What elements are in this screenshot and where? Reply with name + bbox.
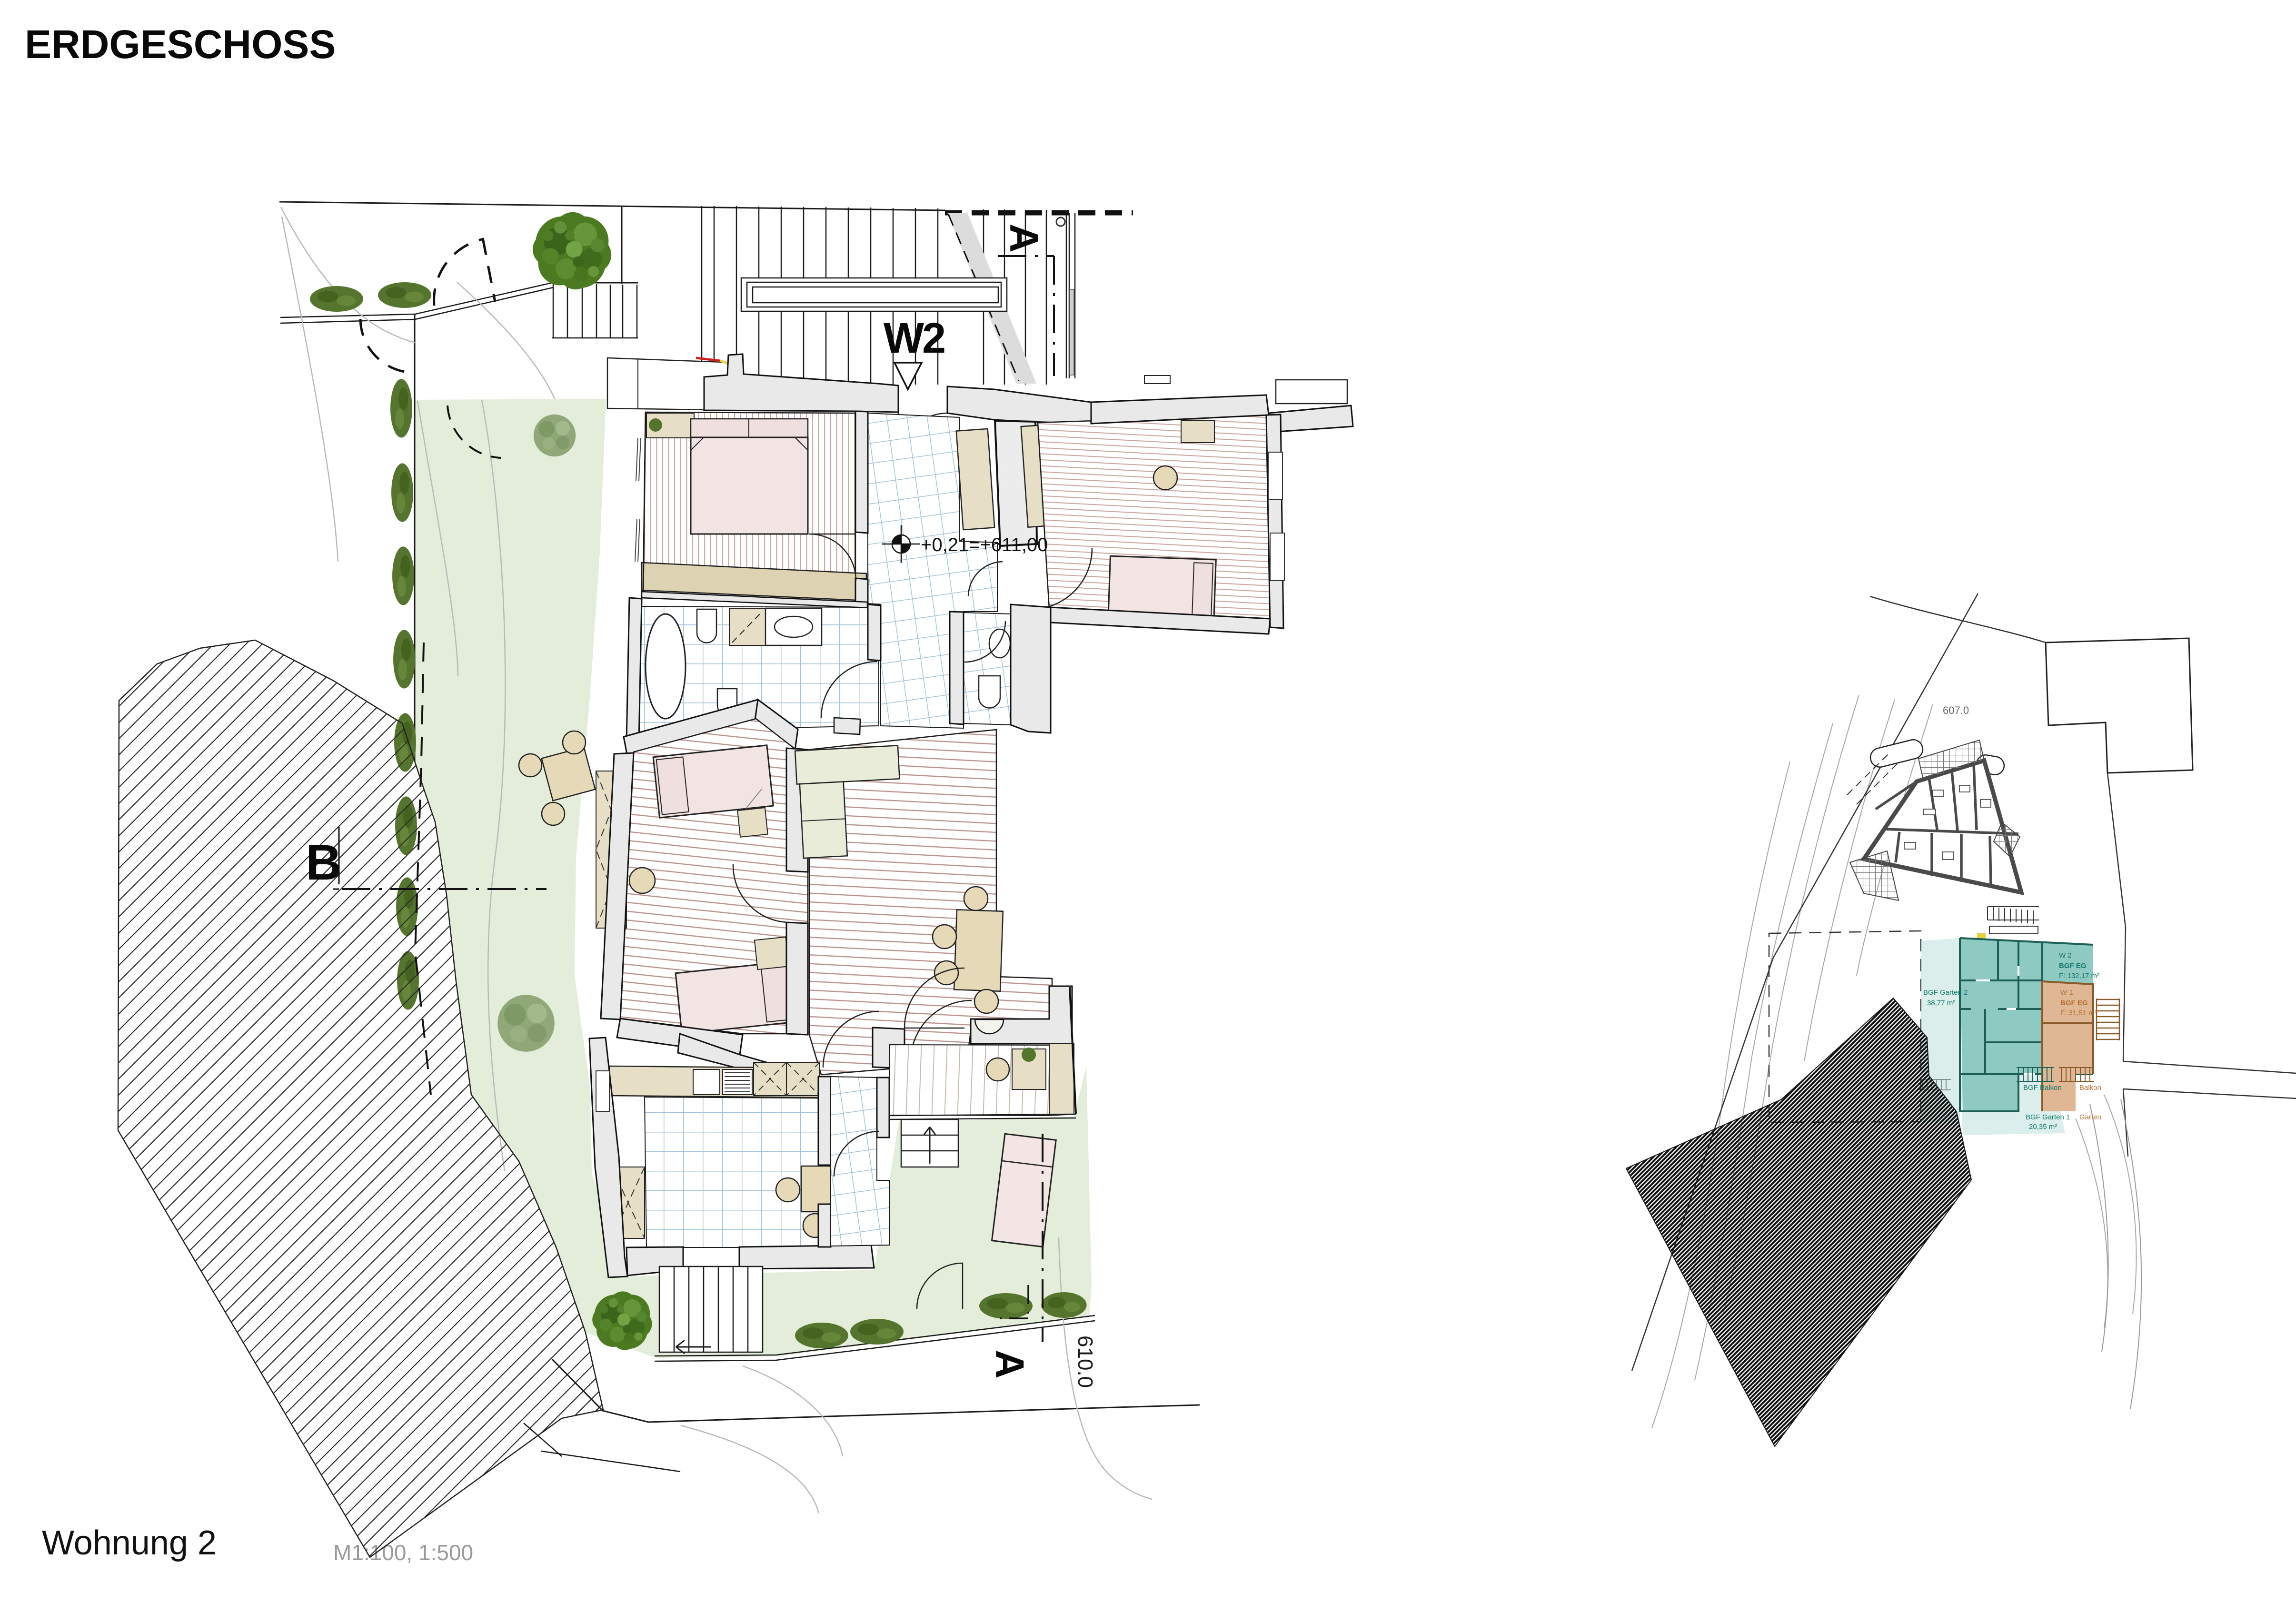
svg-text:610.0: 610.0: [1073, 1335, 1097, 1388]
svg-text:BGF Garten 1: BGF Garten 1: [2026, 1113, 2070, 1121]
svg-text:38,77 m²: 38,77 m²: [1927, 999, 1955, 1007]
svg-text:BGF Balkon: BGF Balkon: [2023, 1084, 2062, 1092]
svg-text:Balkon: Balkon: [2079, 1084, 2101, 1092]
svg-text:A: A: [987, 1350, 1032, 1379]
svg-text:B: B: [306, 835, 342, 890]
svg-text:Garten: Garten: [2079, 1113, 2101, 1121]
svg-text:Wohnung 2: Wohnung 2: [42, 1524, 217, 1562]
svg-text:BGF Garten 2: BGF Garten 2: [1923, 989, 1968, 997]
svg-text:F: 132,17 m²: F: 132,17 m²: [2059, 972, 2099, 980]
svg-text:607.0: 607.0: [1943, 704, 1969, 716]
svg-text:ERDGESCHOSS: ERDGESCHOSS: [25, 22, 336, 67]
svg-text:F: 31,51 m²: F: 31,51 m²: [2060, 1009, 2097, 1017]
svg-text:20,35 m²: 20,35 m²: [2029, 1123, 2057, 1131]
svg-text:W2: W2: [884, 315, 944, 362]
svg-text:W 2: W 2: [2059, 951, 2072, 959]
svg-text:+0,21=+611,00: +0,21=+611,00: [921, 534, 1048, 555]
svg-text:BGF EG: BGF EG: [2059, 962, 2087, 970]
svg-text:BGF EG: BGF EG: [2060, 999, 2088, 1007]
svg-text:A: A: [1002, 224, 1046, 253]
svg-text:M1:100, 1:500: M1:100, 1:500: [333, 1540, 473, 1565]
svg-text:W 1: W 1: [2060, 989, 2073, 997]
